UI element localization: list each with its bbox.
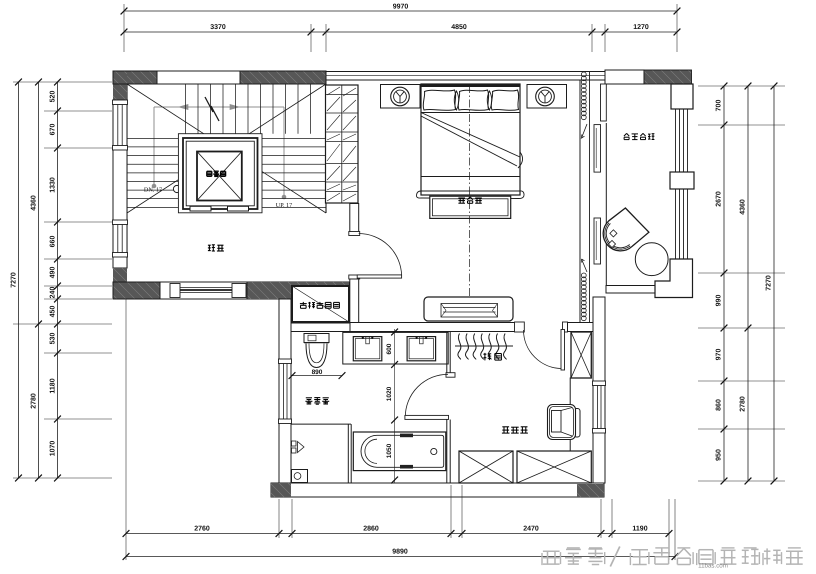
svg-text:3370: 3370 — [210, 24, 226, 31]
svg-text:1070: 1070 — [50, 441, 57, 457]
svg-text:9970: 9970 — [393, 4, 409, 11]
svg-text:2760: 2760 — [194, 526, 210, 533]
svg-text:11bas.com: 11bas.com — [698, 563, 728, 570]
svg-text:1330: 1330 — [50, 177, 57, 193]
svg-text:970: 970 — [716, 349, 723, 361]
svg-text:1050: 1050 — [386, 443, 393, 458]
svg-text:2780: 2780 — [31, 393, 38, 409]
svg-text:240: 240 — [50, 287, 57, 299]
svg-text:2670: 2670 — [716, 191, 723, 207]
svg-text:700: 700 — [716, 100, 723, 112]
svg-text:4850: 4850 — [451, 24, 467, 31]
svg-text:520: 520 — [50, 91, 57, 103]
svg-text:490: 490 — [50, 267, 57, 279]
svg-text:2470: 2470 — [523, 526, 539, 533]
svg-text:530: 530 — [50, 333, 57, 345]
svg-text:1190: 1190 — [632, 526, 647, 533]
svg-text:950: 950 — [716, 449, 723, 461]
svg-text:990: 990 — [716, 295, 723, 307]
svg-text:450: 450 — [50, 306, 57, 318]
svg-text:1180: 1180 — [50, 378, 57, 393]
svg-text:DN. 17: DN. 17 — [144, 187, 162, 194]
svg-text:860: 860 — [716, 399, 723, 411]
svg-text:2860: 2860 — [363, 526, 379, 533]
svg-text:4360: 4360 — [31, 195, 38, 211]
svg-text:660: 660 — [50, 236, 57, 248]
svg-text:1020: 1020 — [386, 386, 393, 401]
svg-text:2780: 2780 — [740, 396, 747, 412]
svg-text:7270: 7270 — [11, 272, 18, 288]
svg-text:1270: 1270 — [633, 24, 649, 31]
svg-text:890: 890 — [312, 369, 323, 376]
svg-text:9890: 9890 — [392, 549, 408, 556]
svg-text:4360: 4360 — [740, 199, 747, 215]
svg-text:UP. 17: UP. 17 — [276, 202, 293, 209]
svg-text:600: 600 — [386, 343, 393, 354]
svg-text:7270: 7270 — [766, 275, 773, 291]
svg-text:670: 670 — [50, 124, 57, 136]
